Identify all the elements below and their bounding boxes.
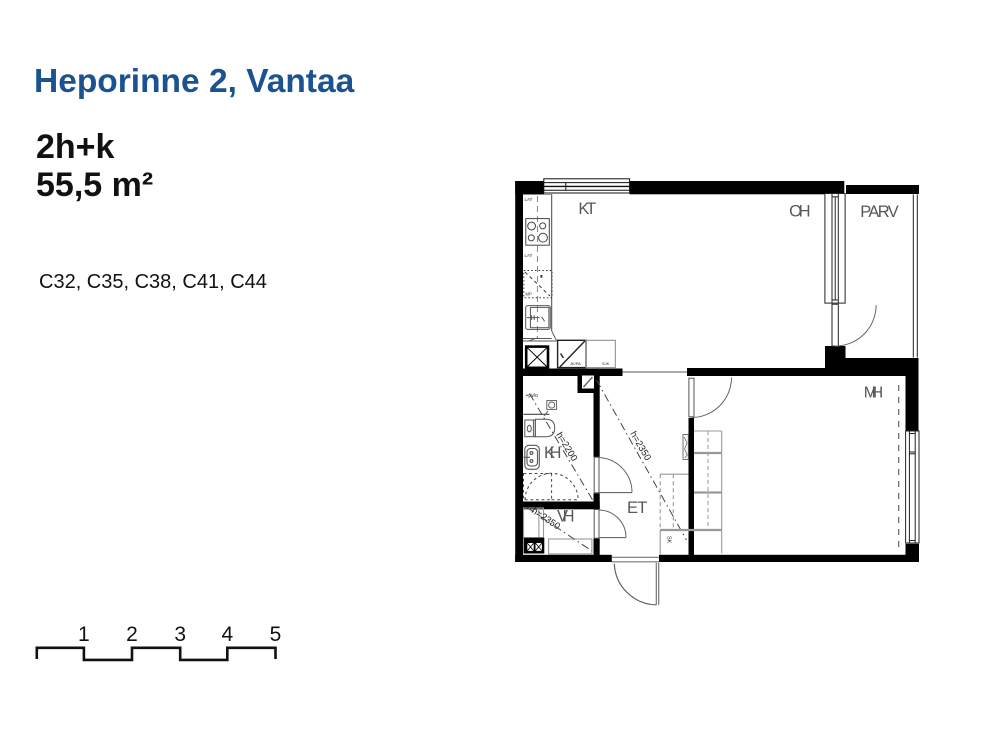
svg-text:OH: OH: [789, 202, 811, 220]
svg-text:55,5 m²: 55,5 m²: [36, 166, 153, 204]
svg-text:KH: KH: [544, 444, 561, 462]
svg-text:1: 1: [78, 623, 90, 646]
svg-text:JK/PA: JK/PA: [570, 361, 581, 366]
svg-text:Heporinne 2, Vantaa: Heporinne 2, Vantaa: [34, 63, 355, 100]
svg-text:KT: KT: [578, 200, 596, 218]
svg-text:2: 2: [126, 623, 138, 646]
svg-text:LAT: LAT: [525, 253, 533, 258]
svg-text:SJK: SJK: [602, 361, 610, 366]
svg-text:LAT: LAT: [525, 197, 533, 202]
svg-text:4: 4: [221, 623, 233, 646]
svg-text:MP: MP: [526, 292, 532, 297]
svg-text:ET: ET: [627, 499, 647, 517]
svg-text:PARV: PARV: [860, 203, 899, 221]
svg-text:MH: MH: [864, 385, 884, 402]
svg-text:SK: SK: [666, 536, 672, 544]
svg-text:2h+k: 2h+k: [36, 128, 115, 166]
svg-text:C32, C35, C38, C41, C44: C32, C35, C38, C41, C44: [39, 271, 267, 293]
svg-text:5: 5: [270, 623, 282, 646]
svg-text:3: 3: [174, 623, 186, 646]
